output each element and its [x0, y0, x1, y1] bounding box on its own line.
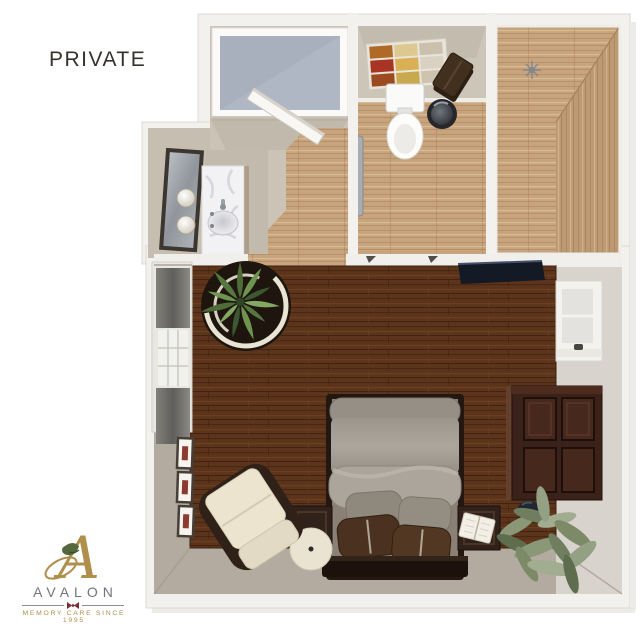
avalon-logo: A AVALON MEMORY CARE SINCE 1995: [14, 520, 132, 624]
bow-knot: [72, 604, 75, 607]
art-print: [183, 514, 189, 528]
shelf-bin: [369, 45, 393, 59]
dresser-panel: [562, 448, 594, 492]
bow-icon: [67, 602, 79, 609]
divider-line: [82, 605, 124, 606]
room-bedroom: [152, 249, 622, 594]
bow-right: [74, 602, 79, 609]
curtain-top: [156, 268, 190, 328]
art-print: [182, 446, 188, 460]
window-pane: [158, 330, 188, 386]
faucet-handle: [210, 224, 214, 228]
logo-name: AVALON: [14, 584, 132, 600]
trash-lid: [431, 103, 453, 125]
room-bathroom: [356, 26, 486, 254]
window-handle: [574, 344, 583, 350]
shelf-bin: [395, 57, 419, 71]
bow-left: [67, 602, 72, 609]
wall-separator: [486, 14, 496, 264]
plan-shadow-right: [631, 22, 636, 610]
bathroom-wood-floor: [358, 102, 486, 254]
window-left: [152, 262, 192, 444]
sconce-light: [177, 189, 195, 207]
sconce-light: [177, 216, 195, 234]
bed: [322, 394, 468, 580]
shelf-bin: [420, 56, 444, 70]
framed-art: [178, 506, 194, 537]
faucet-handle: [210, 212, 214, 216]
shelf-bin: [370, 59, 394, 73]
headboard-edge: [322, 556, 468, 561]
dresser-top-edge: [512, 386, 602, 394]
shelf-bin: [419, 42, 443, 56]
avalon-monogram: A: [21, 520, 125, 586]
window-right: [556, 281, 602, 361]
curtain-bottom: [156, 388, 190, 444]
nightstand-right: [458, 506, 500, 550]
faucet-base: [220, 204, 226, 210]
monogram-letter: A: [53, 524, 100, 586]
framed-art: [177, 438, 193, 469]
shelf-bin: [396, 71, 420, 85]
plan-shadow-bottom: [152, 608, 635, 613]
room-walk-in-closet: [496, 26, 620, 254]
floor-plan-page: PRIVATE: [0, 0, 640, 640]
counter-edge-shadow: [244, 166, 249, 256]
framed-art: [177, 472, 193, 503]
table-center: [309, 547, 314, 552]
marble-vanity: [202, 166, 249, 256]
dresser-panel: [524, 448, 556, 492]
dresser: [506, 386, 602, 500]
wall-separator: [348, 14, 358, 264]
trash-can: [427, 99, 457, 129]
framed-art-group: [177, 438, 194, 537]
divider-line: [22, 605, 64, 606]
toilet: [386, 84, 424, 159]
wall-tv: [458, 261, 545, 284]
art-print: [182, 480, 188, 494]
window-sill: [556, 349, 602, 357]
logo-tagline: MEMORY CARE SINCE 1995: [14, 610, 132, 624]
plant-center: [236, 298, 244, 306]
shelf-bin: [394, 43, 418, 57]
toilet-bowl: [394, 124, 416, 154]
logo-divider: [22, 602, 124, 609]
